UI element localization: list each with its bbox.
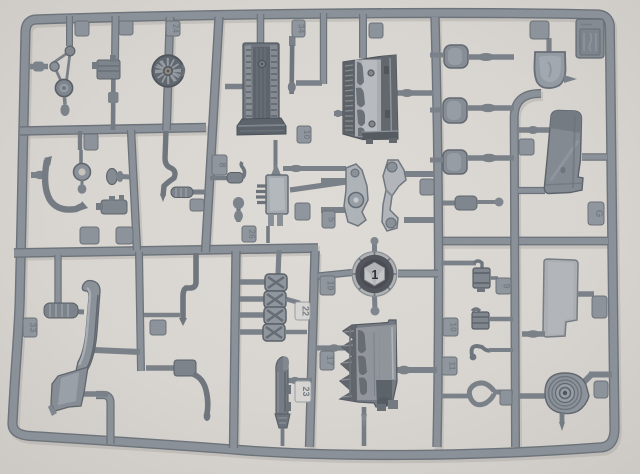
svg-text:8: 8: [218, 162, 228, 167]
svg-text:G: G: [593, 210, 604, 218]
svg-text:5: 5: [327, 217, 337, 222]
svg-text:24: 24: [171, 24, 180, 33]
svg-text:33: 33: [28, 322, 38, 332]
svg-text:11: 11: [448, 362, 458, 371]
svg-text:23: 23: [301, 386, 311, 396]
svg-text:9: 9: [502, 283, 512, 288]
svg-text:10: 10: [449, 322, 459, 332]
svg-text:26: 26: [247, 229, 257, 239]
svg-text:1: 1: [371, 268, 378, 282]
svg-text:17: 17: [325, 355, 335, 365]
svg-text:34: 34: [297, 24, 307, 34]
svg-text:10: 10: [302, 130, 312, 140]
svg-text:19: 19: [326, 280, 336, 290]
svg-text:22: 22: [301, 306, 311, 316]
